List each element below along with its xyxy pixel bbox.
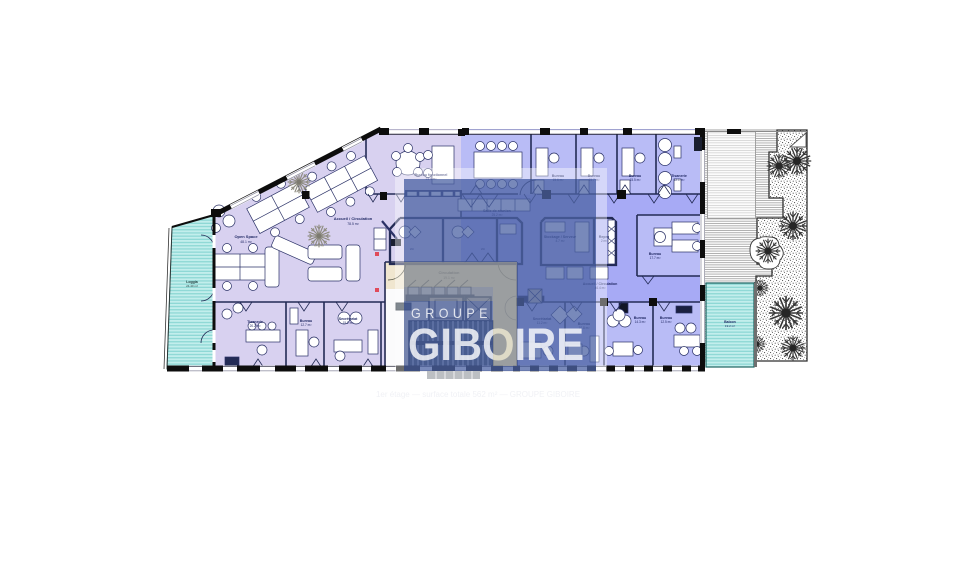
svg-text:12.7 m²: 12.7 m² [301, 323, 312, 327]
svg-text:19.2 m²: 19.2 m² [725, 324, 735, 328]
svg-text:12.5 m²: 12.5 m² [661, 320, 672, 324]
svg-text:24.40 m²: 24.40 m² [186, 284, 198, 288]
svg-text:17.7 m²: 17.7 m² [650, 256, 661, 260]
svg-text:15.5 m²: 15.5 m² [630, 178, 641, 182]
svg-text:20.2 m²: 20.2 m² [250, 324, 261, 328]
svg-text:15.2 m²: 15.2 m² [343, 321, 354, 325]
svg-text:48.1 m²: 48.1 m² [240, 240, 252, 244]
svg-text:78.5 m²: 78.5 m² [347, 222, 359, 226]
svg-text:12.1 m²: 12.1 m² [674, 178, 685, 182]
svg-text:Open Space: Open Space [234, 234, 258, 239]
svg-text:Accueil / Circulation: Accueil / Circulation [334, 216, 373, 221]
svg-text:14.3 m²: 14.3 m² [635, 320, 646, 324]
svg-text:1er étage — surface totale 562: 1er étage — surface totale 562 m² — GROU… [376, 390, 580, 399]
